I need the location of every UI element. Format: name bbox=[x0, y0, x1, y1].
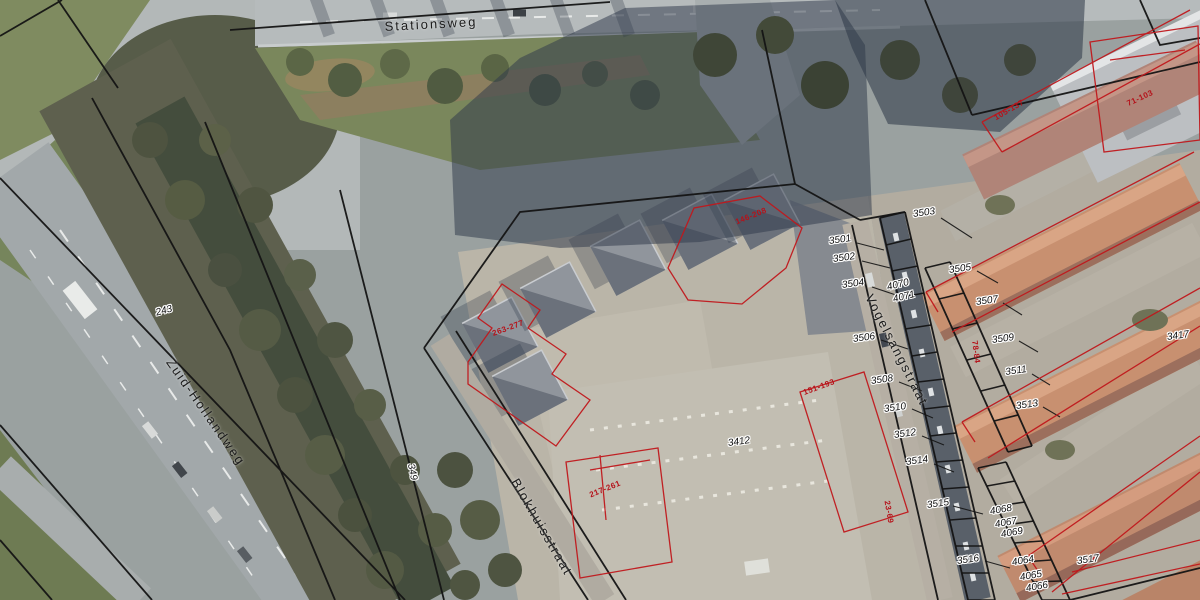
parcel-number-label: 349 bbox=[405, 463, 419, 482]
parcel-number-label: 3515 bbox=[926, 497, 950, 511]
parcel-number-label: 3512 bbox=[893, 427, 917, 441]
house-number-range-label: 146-208 bbox=[734, 206, 768, 227]
parcel-number-label: 3505 bbox=[948, 262, 972, 276]
parcel-number-label: 3507 bbox=[975, 294, 999, 308]
house-number-range-label: 217-261 bbox=[588, 479, 622, 500]
map-labels-layer: StationswegZuid-HollandwegBlokhuisstraat… bbox=[0, 0, 1200, 600]
street-name-label: Stationsweg bbox=[384, 14, 477, 34]
parcel-number-label: 3501 bbox=[828, 233, 852, 247]
parcel-number-label: 4067 bbox=[994, 516, 1018, 531]
parcel-number-label: 3513 bbox=[1015, 398, 1039, 412]
parcel-number-label: 3508 bbox=[870, 373, 894, 387]
street-name-label: Blokhuisstraat bbox=[508, 476, 576, 578]
parcel-number-label: 3516 bbox=[956, 553, 980, 567]
parcel-number-label: 4070 bbox=[886, 277, 910, 293]
parcel-number-label: 3509 bbox=[991, 332, 1015, 346]
house-number-range-label: 263-277 bbox=[491, 318, 525, 338]
parcel-number-label: 243 bbox=[155, 304, 174, 319]
parcel-number-label: 3510 bbox=[883, 401, 907, 415]
parcel-number-label: 3514 bbox=[905, 454, 929, 468]
parcel-number-label: 4071 bbox=[892, 289, 916, 305]
parcel-number-label: 3511 bbox=[1005, 364, 1028, 378]
house-number-range-label: 151-193 bbox=[802, 377, 836, 397]
parcel-number-label: 3504 bbox=[841, 277, 865, 291]
parcel-number-label: 3506 bbox=[852, 331, 876, 345]
parcel-number-label: 4068 bbox=[989, 503, 1013, 518]
parcel-number-label: 3517 bbox=[1076, 553, 1100, 567]
house-number-range-label: 23-69 bbox=[883, 500, 896, 524]
parcel-number-label: 4066 bbox=[1025, 580, 1049, 595]
parcel-number-label: 4069 bbox=[1000, 526, 1024, 541]
parcel-number-label: 4064 bbox=[1011, 554, 1035, 569]
parcel-number-label: 3417 bbox=[1166, 329, 1190, 343]
parcel-number-label: 3503 bbox=[912, 206, 936, 220]
house-number-range-label: 71-103 bbox=[1125, 88, 1154, 108]
house-number-range-label: 105-137 bbox=[993, 98, 1026, 122]
map-viewport[interactable]: StationswegZuid-HollandwegBlokhuisstraat… bbox=[0, 0, 1200, 600]
parcel-number-label: 4065 bbox=[1019, 569, 1043, 584]
parcel-number-label: 3502 bbox=[832, 251, 856, 265]
street-name-label: Vogelsangstraat bbox=[862, 292, 931, 409]
street-name-label: Zuid-Hollandweg bbox=[163, 355, 248, 468]
parcel-number-label: 3412 bbox=[727, 435, 751, 449]
house-number-range-label: 78-84 bbox=[970, 340, 982, 364]
